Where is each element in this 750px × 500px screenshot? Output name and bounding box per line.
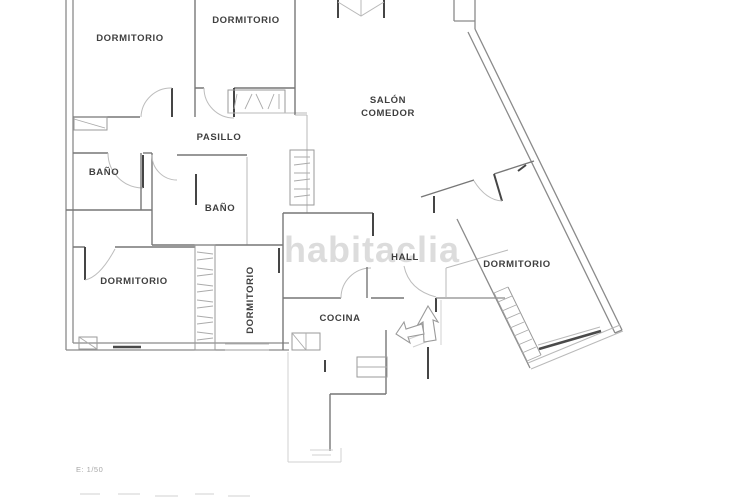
label-salon-line1: SALÓN (370, 94, 406, 106)
label-pasillo: PASILLO (197, 132, 242, 143)
corridor-walls (66, 117, 152, 210)
bathroom-mid-walls (152, 153, 283, 245)
label-dormitorio-bottom-left: DORMITORIO (100, 276, 168, 287)
bottom-edge-marks (80, 494, 250, 496)
bedrooms-bottom-walls (73, 245, 269, 350)
scale-note: E: 1/50 (76, 465, 103, 474)
label-bano-left: BAÑO (89, 167, 119, 178)
room-labels: DORMITORIO DORMITORIO SALÓN COMEDOR PASI… (89, 15, 551, 334)
floor-plan-page: habitaclia DORMITORIO DORMITORIO SALÓN C… (0, 0, 750, 500)
label-hall: HALL (391, 252, 419, 263)
label-dormitorio-top-mid: DORMITORIO (212, 15, 280, 26)
label-dormitorio-right: DORMITORIO (483, 259, 551, 270)
label-dormitorio-top-left: DORMITORIO (96, 33, 164, 44)
watermark-text: habitaclia (284, 229, 460, 270)
label-salon-line2: COMEDOR (361, 108, 415, 119)
gallery-walls (288, 352, 341, 462)
label-dormitorio-bottom-mid: DORMITORIO (245, 266, 256, 334)
label-bano-mid: BAÑO (205, 203, 235, 214)
label-cocina: COCINA (319, 313, 360, 324)
watermark: habitaclia (284, 229, 460, 270)
kitchen-walls (283, 250, 508, 451)
floor-plan-drawing: habitaclia DORMITORIO DORMITORIO SALÓN C… (0, 0, 750, 500)
scale-note-text: E: 1/50 (76, 465, 103, 474)
outer-walls (66, 0, 622, 350)
entrance-arrow-icon (396, 306, 438, 343)
salon-walls (295, 0, 384, 213)
